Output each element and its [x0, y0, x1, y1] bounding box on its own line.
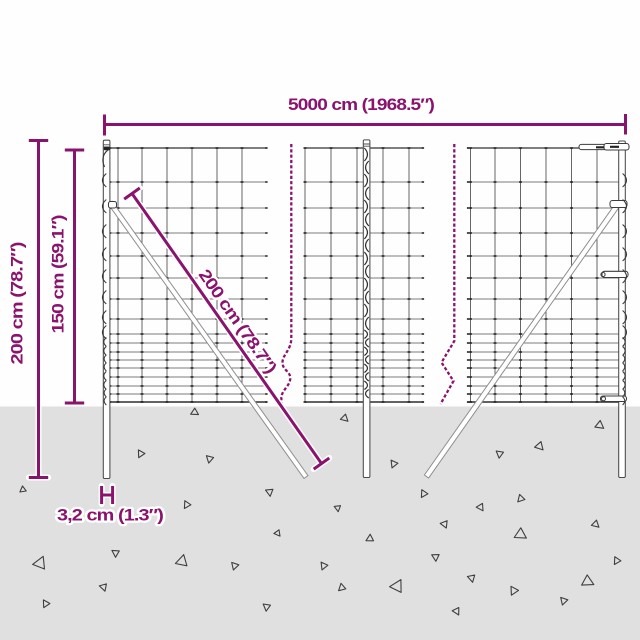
svg-text:3,2 cm (1.3″): 3,2 cm (1.3″)	[57, 506, 163, 525]
svg-text:5000 cm (1968.5″): 5000 cm (1968.5″)	[288, 95, 434, 114]
svg-text:150 cm (59.1″): 150 cm (59.1″)	[49, 215, 68, 333]
svg-text:200 cm (78.7″): 200 cm (78.7″)	[8, 242, 27, 364]
